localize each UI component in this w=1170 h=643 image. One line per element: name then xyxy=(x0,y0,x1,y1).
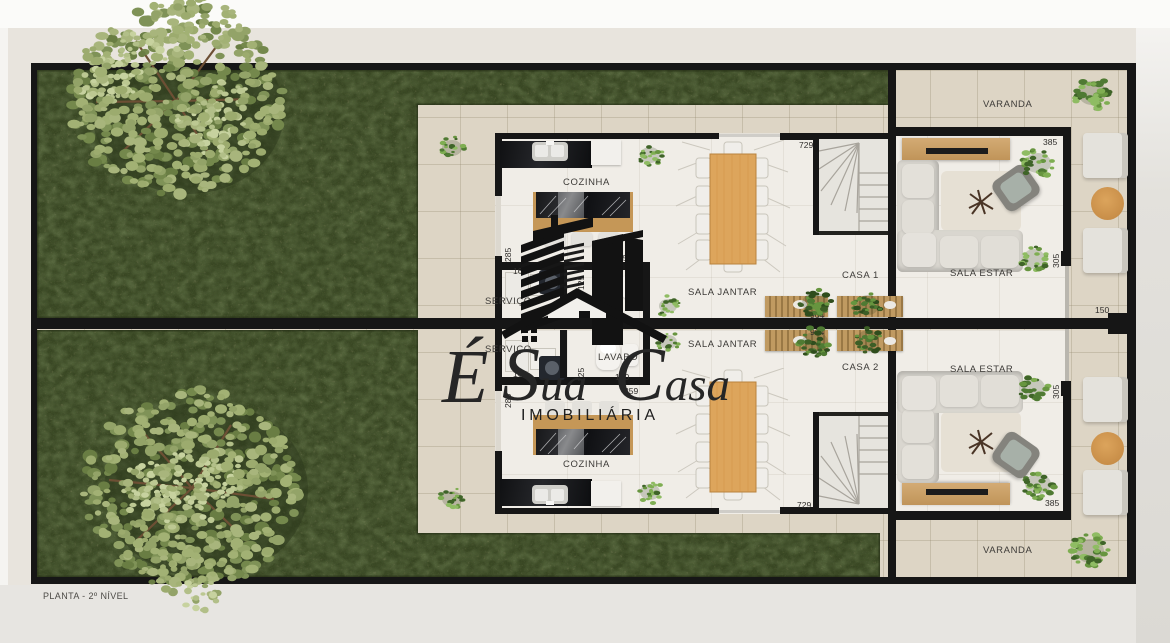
svg-text:É: É xyxy=(441,335,488,419)
svg-text:Casa: Casa xyxy=(614,333,730,417)
svg-text:Sua: Sua xyxy=(502,333,587,417)
